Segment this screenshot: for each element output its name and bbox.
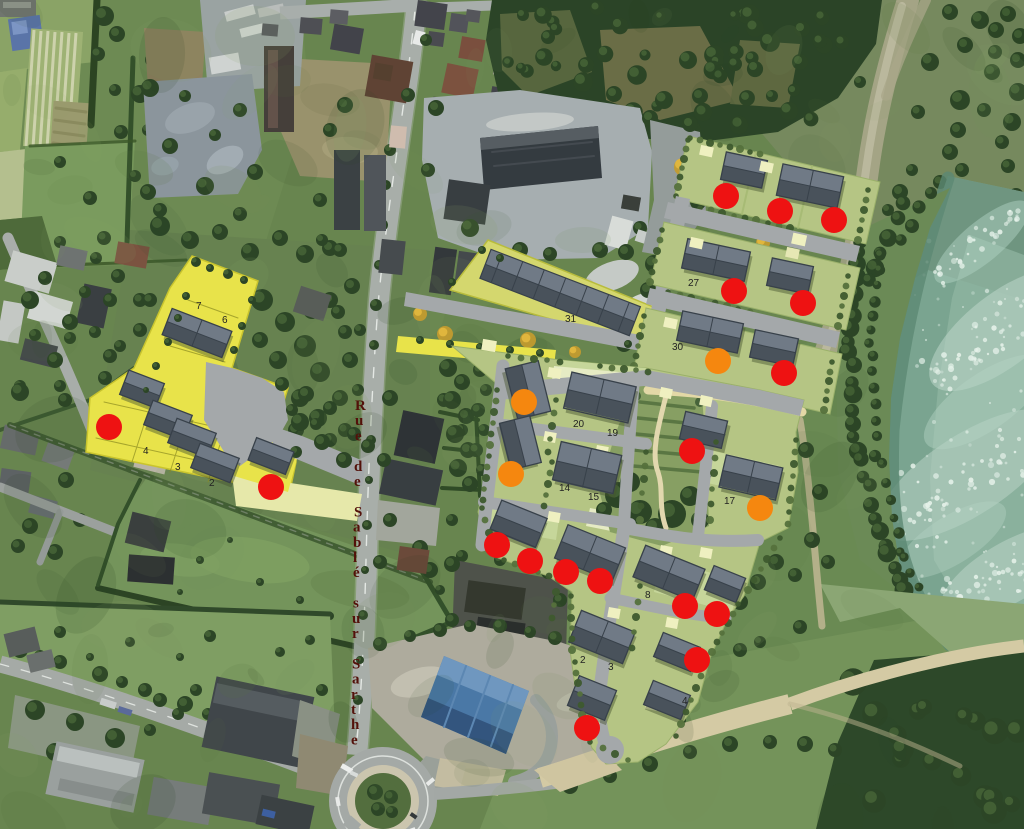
svg-text:2: 2: [209, 478, 215, 489]
svg-text:u: u: [352, 611, 360, 627]
svg-text:17: 17: [724, 496, 736, 507]
svg-text:d: d: [354, 459, 363, 475]
svg-text:a: a: [353, 520, 361, 536]
svg-text:s: s: [353, 596, 359, 612]
svg-text:27: 27: [688, 278, 700, 289]
svg-text:7: 7: [196, 301, 202, 312]
svg-text:b: b: [353, 535, 361, 551]
svg-text:6: 6: [222, 315, 228, 326]
svg-text:e: e: [355, 428, 362, 444]
svg-text:4: 4: [143, 446, 149, 457]
svg-text:r: r: [352, 626, 359, 642]
svg-text:8: 8: [645, 590, 651, 601]
svg-text:r: r: [351, 687, 358, 703]
svg-text:a: a: [352, 672, 360, 688]
svg-text:20: 20: [573, 419, 585, 430]
svg-text:3: 3: [175, 462, 181, 473]
svg-text:15: 15: [588, 492, 600, 503]
svg-text:u: u: [355, 413, 363, 429]
svg-text:h: h: [351, 717, 360, 733]
svg-text:4: 4: [682, 696, 688, 707]
svg-text:30: 30: [672, 342, 684, 353]
svg-text:é: é: [353, 565, 360, 581]
svg-text:R: R: [355, 398, 366, 414]
svg-text:2: 2: [580, 655, 586, 666]
svg-text:l: l: [353, 550, 357, 566]
svg-text:e: e: [354, 474, 361, 490]
svg-text:14: 14: [559, 483, 571, 494]
svg-text:3: 3: [608, 662, 614, 673]
svg-text:e: e: [351, 732, 358, 748]
svg-text:S: S: [354, 504, 362, 520]
svg-text:19: 19: [607, 428, 619, 439]
svg-text:31: 31: [565, 314, 577, 325]
svg-text:S: S: [352, 656, 360, 672]
svg-text:t: t: [351, 702, 356, 718]
